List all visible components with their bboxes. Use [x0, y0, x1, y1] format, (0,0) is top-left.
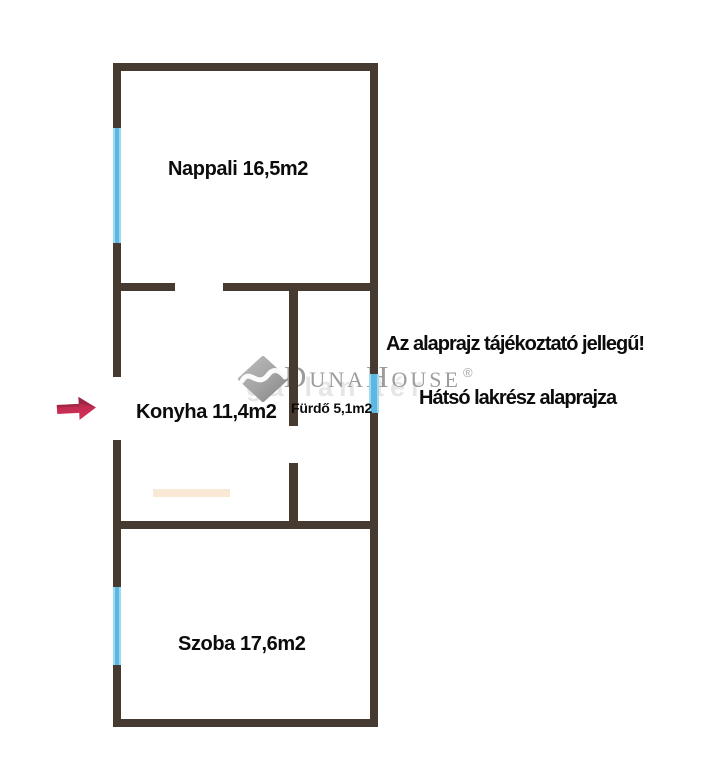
wall-exterior-left-lower	[113, 440, 121, 587]
registered-trademark-icon: ®	[463, 366, 473, 379]
wall-exterior-bottom	[113, 719, 378, 727]
wall-exterior-left-bottom	[113, 665, 121, 727]
wall-interior-konyha-furdo-lower	[289, 463, 298, 521]
window-szoba	[113, 587, 121, 665]
wall-interior-nappali-konyha-right	[223, 283, 370, 291]
wall-exterior-top	[113, 63, 378, 71]
window-nappali	[113, 128, 121, 243]
wall-exterior-right-lower	[370, 413, 378, 727]
room-label-szoba: Szoba 17,6m2	[178, 634, 306, 654]
room-label-furdo: Fürdő 5,1m2	[291, 401, 372, 415]
wall-interior-nappali-konyha-left	[113, 283, 175, 291]
dunahouse-diamond-logo-icon	[236, 356, 290, 406]
entrance-arrow-icon	[54, 393, 100, 425]
room-label-nappali: Nappali 16,5m2	[168, 159, 308, 179]
wall-exterior-left-middle	[113, 243, 121, 377]
plan-title-text: Hátsó lakrész alaprajza	[419, 388, 616, 408]
wall-interior-konyha-szoba	[113, 521, 378, 529]
disclaimer-text: Az alaprajz tájékoztató jellegű!	[386, 334, 644, 354]
wall-exterior-right-upper	[370, 63, 378, 375]
floor-plan: gatlan tér DunaHouse ®	[0, 0, 711, 768]
room-label-konyha: Konyha 11,4m2	[136, 402, 276, 422]
faint-artifact-rect	[153, 489, 230, 497]
wall-exterior-left-upper	[113, 63, 121, 128]
